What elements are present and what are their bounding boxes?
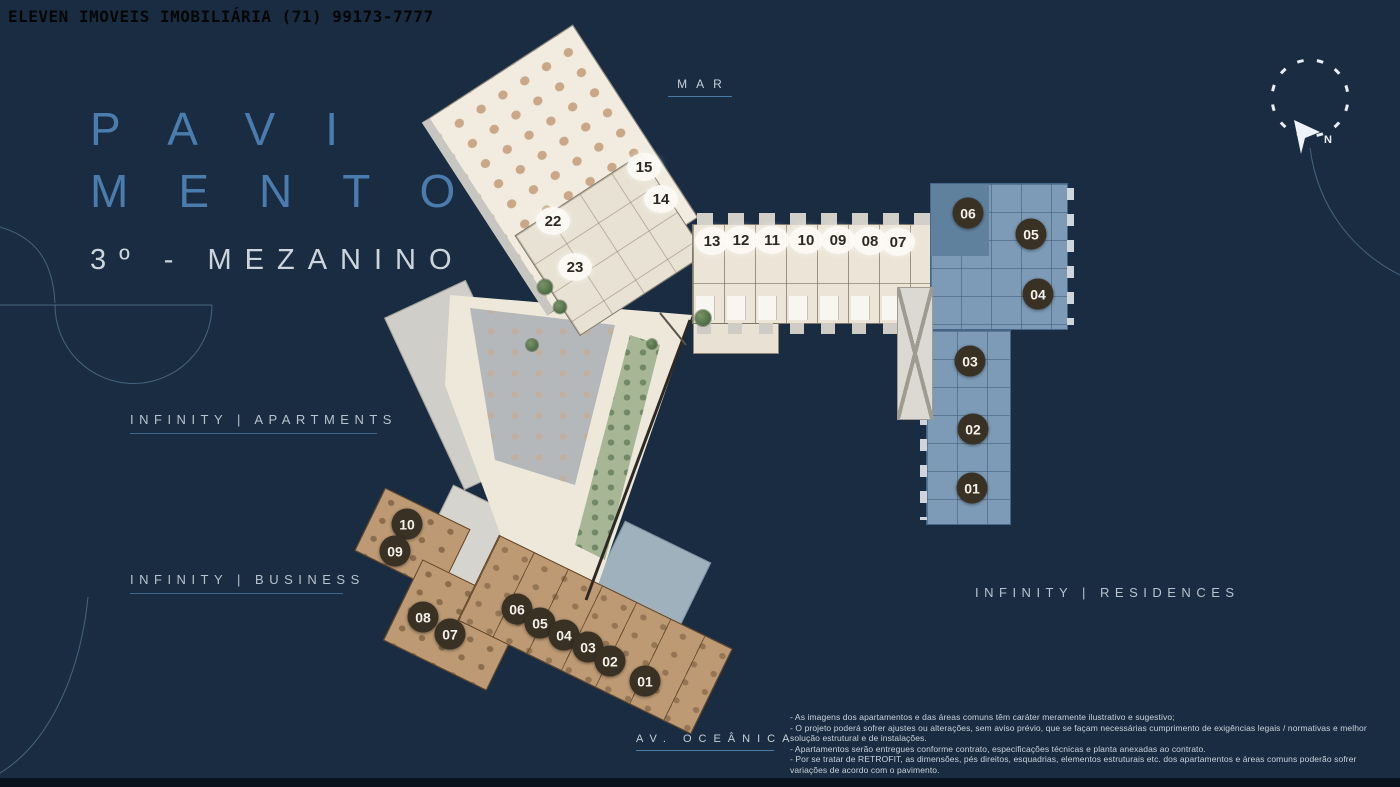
floorplan-poster: 1514222313121110090807060504030201100908… <box>0 0 1400 787</box>
apartments-label: INFINITY | APARTMENTS <box>130 412 397 434</box>
compass-arrow-icon <box>1294 120 1320 154</box>
unit-badge-apartments-23: 23 <box>558 253 592 281</box>
title-line-2: MENTO <box>90 160 505 222</box>
unit-badge-apartments-09: 09 <box>821 226 855 254</box>
unit-badge-apartments-14: 14 <box>644 185 678 213</box>
unit-badge-business-02: 02 <box>595 646 626 677</box>
mar-label: MAR <box>668 77 734 97</box>
unit-badge-business-07: 07 <box>435 619 466 650</box>
balcony-tabs <box>697 323 931 334</box>
balcony-tabs <box>697 213 931 225</box>
disclaimer-line: - As imagens dos apartamentos e das área… <box>790 712 1392 723</box>
business-label: INFINITY | BUSINESS <box>130 572 365 594</box>
unit-badge-apartments-11: 11 <box>755 226 789 254</box>
stair-shaft <box>897 287 933 420</box>
tree-icon <box>526 339 538 351</box>
avenue-label-text: AV. OCEÂNICA <box>636 733 796 745</box>
unit-badge-residences-01: 01 <box>957 473 988 504</box>
unit-badge-business-09: 09 <box>380 536 411 567</box>
apartments-underline <box>130 433 377 434</box>
unit-badge-residences-03: 03 <box>955 346 986 377</box>
tree-icon <box>538 280 553 295</box>
disclaimer-line: - Por se tratar de RETROFIT, as dimensõe… <box>790 754 1392 775</box>
title-line-1: PAVI <box>90 98 505 160</box>
mar-underline <box>668 96 732 97</box>
disclaimer-line: - Apartamentos serão entregues conforme … <box>790 744 1392 755</box>
watermark-text: ELEVEN IMOVEIS IMOBILIÁRIA (71) 99173-77… <box>8 7 434 26</box>
residences-wing-top <box>930 183 1068 330</box>
unit-badge-residences-06: 06 <box>953 198 984 229</box>
disclaimer: - As imagens dos apartamentos e das área… <box>790 712 1392 776</box>
business-label-text: INFINITY | BUSINESS <box>130 572 365 587</box>
unit-badge-apartments-07: 07 <box>881 228 915 256</box>
tree-icon <box>647 339 657 349</box>
compass-rose-icon <box>1258 46 1368 164</box>
avenue-underline <box>636 750 774 751</box>
unit-badge-business-08: 08 <box>408 602 439 633</box>
apartments-label-text: INFINITY | APARTMENTS <box>130 412 397 427</box>
corridor-wall-line <box>693 283 935 284</box>
balcony-tabs <box>1067 188 1074 325</box>
unit-badge-residences-05: 05 <box>1016 219 1047 250</box>
avenue-label: AV. OCEÂNICA <box>636 733 796 751</box>
unit-badge-apartments-22: 22 <box>536 207 570 235</box>
mar-text: MAR <box>668 77 734 91</box>
business-underline <box>130 593 343 594</box>
compass: N <box>1258 46 1368 164</box>
compass-north-label: N <box>1324 134 1333 146</box>
unit-badge-apartments-10: 10 <box>789 226 823 254</box>
unit-badge-residences-02: 02 <box>958 414 989 445</box>
tree-icon <box>695 310 711 326</box>
disclaimer-line: - O projeto poderá sofrer ajustes ou alt… <box>790 723 1392 744</box>
unit-badge-residences-04: 04 <box>1023 279 1054 310</box>
residences-label-text: INFINITY | RESIDENCES <box>975 585 1240 600</box>
title-subtitle: 3º - MEZANINO <box>90 244 505 277</box>
bottom-letterbox-bar <box>0 778 1400 787</box>
residences-label: INFINITY | RESIDENCES <box>975 585 1240 600</box>
tree-icon <box>554 301 567 314</box>
unit-badge-apartments-12: 12 <box>724 226 758 254</box>
page-title: PAVI MENTO 3º - MEZANINO <box>90 98 505 277</box>
unit-badge-business-01: 01 <box>630 666 661 697</box>
unit-badge-apartments-15: 15 <box>627 153 661 181</box>
